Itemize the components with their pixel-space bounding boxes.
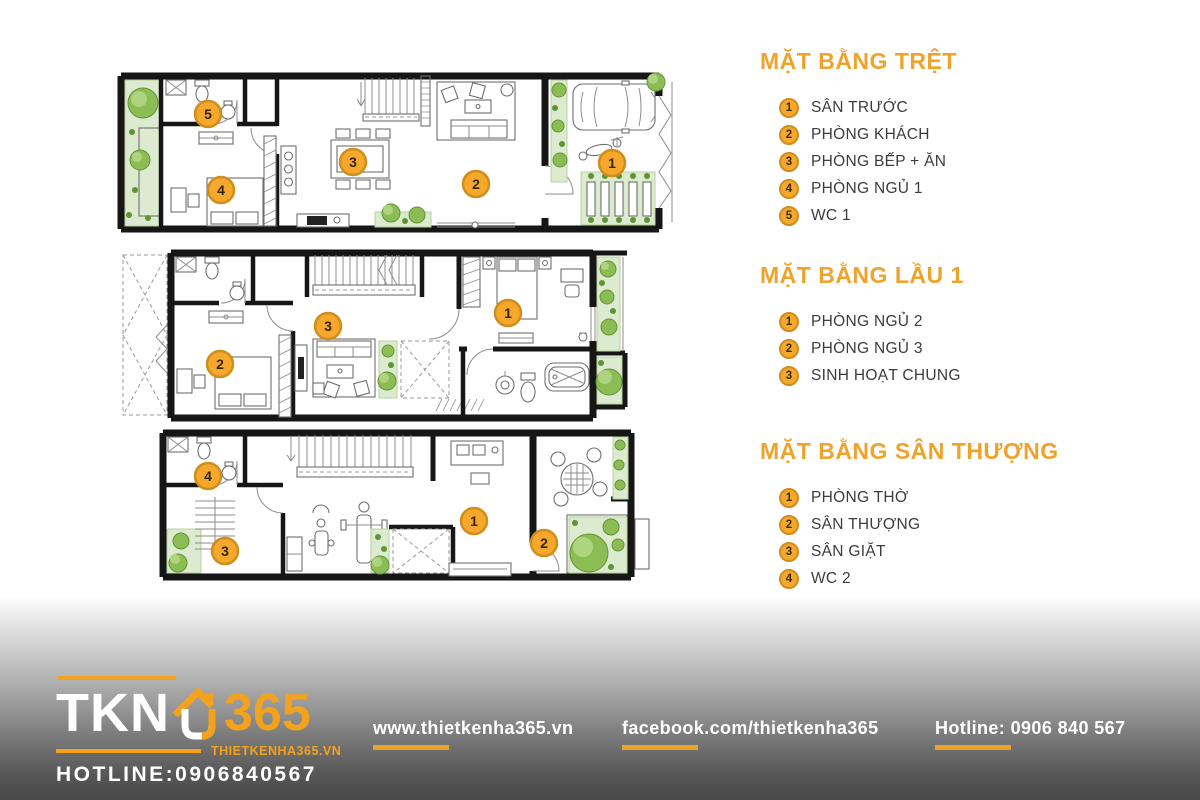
svg-text:2: 2 — [216, 356, 224, 372]
room-marker-1: 1 — [461, 508, 487, 534]
room-marker-2: 2 — [207, 351, 233, 377]
item-label: SÂN THƯỢNG — [811, 516, 920, 534]
item-number-badge: 5 — [779, 206, 799, 226]
floor-plan-level-1-drawing: 123 — [115, 245, 675, 425]
item-label: PHÒNG NGỦ 1 — [811, 180, 923, 198]
svg-text:2: 2 — [540, 535, 548, 551]
logo-hotline-text: HOTLINE:0906840567 — [56, 763, 368, 787]
item-number-badge: 2 — [779, 515, 799, 535]
logo-website-text: THIETKENHA365.VN — [211, 744, 341, 758]
legend-list-ground: 1SÂN TRƯỚC2PHÒNG KHÁCH3PHÒNG BẾP + ĂN4PH… — [760, 98, 957, 226]
poster-canvas: 12345 — [0, 0, 1200, 800]
brand-logo: TKN 365 THIETKENHA365.VN HOTLINE:0906840… — [56, 676, 368, 787]
item-label: SÂN GIẶT — [811, 543, 886, 561]
legend-item: 1PHÒNG THỜ — [779, 488, 1059, 508]
legend-item: 3PHÒNG BẾP + ĂN — [779, 152, 957, 172]
item-number-badge: 3 — [779, 366, 799, 386]
legend-item: 2PHÒNG KHÁCH — [779, 125, 957, 145]
svg-text:4: 4 — [204, 468, 212, 484]
item-label: PHÒNG NGỦ 2 — [811, 313, 923, 331]
legend-list-level-1: 1PHÒNG NGỦ 22PHÒNG NGỦ 33SINH HOẠT CHUNG — [760, 312, 964, 386]
footer-link-facebook-label: facebook.com/thietkenha365 — [622, 718, 879, 738]
item-number-badge: 2 — [779, 125, 799, 145]
svg-text:3: 3 — [221, 543, 229, 559]
svg-text:3: 3 — [349, 154, 357, 170]
room-marker-4: 4 — [195, 463, 221, 489]
item-number-badge: 2 — [779, 339, 799, 359]
legend-item: 2SÂN THƯỢNG — [779, 515, 1059, 535]
logo-accent-line-bottom — [56, 749, 201, 753]
room-marker-3: 3 — [212, 538, 238, 564]
item-label: PHÒNG NGỦ 3 — [811, 340, 923, 358]
legend-section-rooftop: MẶT BẰNG SÂN THƯỢNG 1PHÒNG THỜ2SÂN THƯỢN… — [760, 438, 1059, 596]
svg-text:1: 1 — [504, 305, 512, 321]
floor-plan-ground-drawing: 12345 — [115, 70, 675, 235]
legend-list-rooftop: 1PHÒNG THỜ2SÂN THƯỢNG3SÂN GIẶT4WC 2 — [760, 488, 1059, 589]
floor-plan-ground: 12345 — [115, 70, 675, 235]
svg-text:5: 5 — [204, 106, 212, 122]
footer-link-underline — [373, 745, 449, 750]
legend-title-ground: MẶT BẰNG TRỆT — [760, 48, 957, 74]
footer-bar: TKN 365 THIETKENHA365.VN HOTLINE:0906840… — [0, 596, 1200, 800]
legend-item: 3SÂN GIẶT — [779, 542, 1059, 562]
item-number-badge: 3 — [779, 542, 799, 562]
legend-item: 1PHÒNG NGỦ 2 — [779, 312, 964, 332]
legend-item: 3SINH HOẠT CHUNG — [779, 366, 964, 386]
room-marker-1: 1 — [599, 150, 625, 176]
item-label: PHÒNG THỜ — [811, 489, 909, 507]
footer-link-hotline[interactable]: Hotline: 0906 840 567 — [935, 718, 1126, 750]
floor-plan-level-1: 123 — [115, 245, 675, 425]
legend-section-ground: MẶT BẰNG TRỆT 1SÂN TRƯỚC2PHÒNG KHÁCH3PHÒ… — [760, 48, 957, 233]
item-number-badge: 1 — [779, 488, 799, 508]
legend-section-level-1: MẶT BẰNG LẦU 1 1PHÒNG NGỦ 22PHÒNG NGỦ 33… — [760, 262, 964, 393]
logo-brand-number: 365 — [224, 685, 311, 741]
item-label: PHÒNG BẾP + ĂN — [811, 153, 946, 171]
item-number-badge: 1 — [779, 312, 799, 332]
svg-text:4: 4 — [217, 182, 225, 198]
svg-text:2: 2 — [472, 176, 480, 192]
room-marker-3: 3 — [340, 149, 366, 175]
legend-title-level-1: MẶT BẰNG LẦU 1 — [760, 262, 964, 288]
room-marker-4: 4 — [208, 177, 234, 203]
legend-item: 4WC 2 — [779, 569, 1059, 589]
legend-item: 2PHÒNG NGỦ 3 — [779, 339, 964, 359]
legend-item: 4PHÒNG NGỦ 1 — [779, 179, 957, 199]
logo-brand-text: TKN — [56, 685, 170, 741]
footer-link-facebook[interactable]: facebook.com/thietkenha365 — [622, 718, 879, 750]
logo-accent-line-top — [58, 676, 176, 680]
footer-link-hotline-label: Hotline: 0906 840 567 — [935, 718, 1126, 738]
footer-link-website-label: www.thietkenha365.vn — [373, 718, 573, 738]
item-label: WC 1 — [811, 207, 851, 225]
svg-text:1: 1 — [608, 155, 616, 171]
floor-plan-rooftop: 1234 — [115, 425, 675, 585]
item-label: WC 2 — [811, 570, 851, 588]
legend-item: 5WC 1 — [779, 206, 957, 226]
svg-text:1: 1 — [470, 513, 478, 529]
legend-title-rooftop: MẶT BẰNG SÂN THƯỢNG — [760, 438, 1059, 464]
item-label: PHÒNG KHÁCH — [811, 126, 930, 144]
item-number-badge: 3 — [779, 152, 799, 172]
item-number-badge: 4 — [779, 179, 799, 199]
footer-link-website[interactable]: www.thietkenha365.vn — [373, 718, 573, 750]
house-icon — [172, 685, 222, 741]
item-number-badge: 4 — [779, 569, 799, 589]
footer-link-underline — [935, 745, 1011, 750]
room-marker-3: 3 — [315, 313, 341, 339]
room-marker-5: 5 — [195, 101, 221, 127]
item-label: SÂN TRƯỚC — [811, 99, 908, 117]
item-label: SINH HOẠT CHUNG — [811, 367, 961, 385]
room-marker-2: 2 — [463, 171, 489, 197]
floor-plan-rooftop-drawing: 1234 — [115, 425, 675, 585]
legend-item: 1SÂN TRƯỚC — [779, 98, 957, 118]
footer-link-underline — [622, 745, 698, 750]
svg-text:3: 3 — [324, 318, 332, 334]
room-marker-1: 1 — [495, 300, 521, 326]
room-marker-2: 2 — [531, 530, 557, 556]
item-number-badge: 1 — [779, 98, 799, 118]
